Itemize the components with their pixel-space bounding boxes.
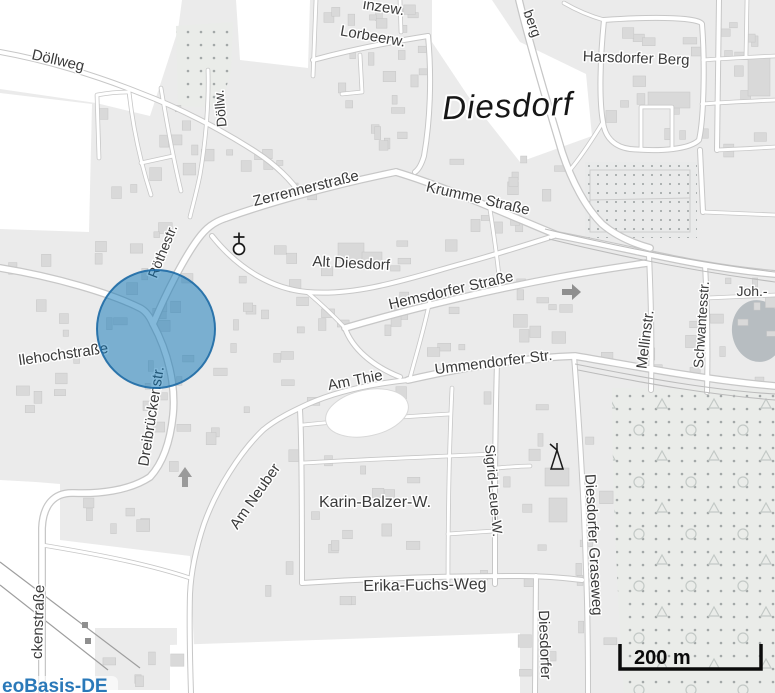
building (376, 18, 387, 28)
building (404, 5, 416, 14)
building (738, 319, 748, 325)
building (239, 276, 246, 283)
building (171, 654, 184, 666)
building (375, 127, 381, 140)
map-label-diesdorf: Diesdorf (442, 85, 577, 127)
building (445, 240, 457, 251)
building (206, 433, 216, 445)
building (754, 302, 760, 310)
building (214, 368, 228, 375)
building (504, 477, 511, 487)
building (130, 244, 142, 253)
building (391, 108, 404, 114)
building (59, 314, 68, 324)
map-label-erika-fuchs-weg: Erika-Fuchs-Weg (363, 576, 487, 595)
building (509, 177, 518, 186)
building (642, 38, 655, 46)
building (549, 304, 557, 309)
building (150, 168, 162, 181)
building (748, 58, 770, 96)
building (169, 461, 178, 471)
building (182, 121, 191, 130)
building (56, 373, 68, 384)
building (520, 329, 529, 342)
building (54, 390, 65, 396)
building (604, 638, 617, 645)
building (103, 658, 116, 665)
building (754, 133, 766, 142)
building (538, 545, 546, 551)
building (459, 344, 465, 349)
building (600, 491, 614, 504)
building (63, 330, 68, 336)
building (734, 66, 743, 76)
building (244, 407, 249, 413)
building (34, 391, 42, 403)
building (227, 150, 233, 155)
building (233, 320, 238, 331)
building (542, 189, 550, 201)
scale-bar-label: 200 m (634, 647, 691, 669)
map-canvas[interactable]: DöllwegDöllw.inzew.Lorbeerw.bergHarsdorf… (0, 0, 775, 693)
building (135, 676, 143, 687)
building (579, 621, 584, 633)
building (518, 635, 531, 647)
building (633, 76, 646, 87)
building (411, 75, 418, 87)
building (513, 314, 527, 327)
building (86, 508, 92, 521)
building (126, 508, 135, 516)
building (231, 343, 237, 352)
building (537, 298, 549, 303)
building (545, 468, 569, 486)
building (95, 254, 102, 265)
building (530, 326, 541, 337)
building (576, 563, 582, 575)
building (549, 498, 567, 522)
building (552, 332, 566, 343)
building (368, 53, 374, 66)
building (406, 541, 419, 549)
building (287, 253, 297, 263)
building (720, 29, 730, 36)
building (683, 38, 697, 44)
building (343, 530, 353, 539)
map-label-joh: Joh.- (736, 283, 767, 299)
building (521, 156, 527, 163)
building (484, 392, 491, 404)
map-label-diesdorfer-str: Diesdorfer (535, 610, 554, 680)
building (392, 95, 397, 104)
building (450, 159, 464, 164)
building (519, 669, 531, 676)
building (112, 187, 122, 199)
building (286, 562, 293, 575)
map-label-doellw: Döllw. (210, 89, 229, 128)
building (183, 163, 196, 175)
building (192, 145, 198, 155)
building (331, 541, 339, 551)
building (767, 331, 775, 336)
building (449, 307, 459, 314)
building (729, 22, 737, 27)
building (710, 314, 723, 323)
building (391, 266, 400, 271)
building (177, 424, 191, 431)
building (621, 101, 629, 108)
building (529, 449, 540, 460)
building (538, 434, 543, 447)
building (41, 254, 50, 266)
building (383, 71, 396, 81)
building (111, 524, 117, 534)
building (95, 241, 106, 251)
building (261, 310, 268, 319)
building (691, 47, 701, 56)
building (725, 278, 731, 284)
building (369, 15, 376, 20)
building (266, 585, 271, 596)
building (398, 258, 411, 264)
building (83, 498, 93, 508)
building (720, 347, 725, 357)
building (281, 352, 293, 360)
highlight-circle[interactable] (97, 270, 215, 388)
building (319, 319, 326, 331)
building (680, 131, 686, 140)
building (16, 386, 29, 395)
building (523, 504, 532, 512)
map-label-ckenstrasse: ckenstraße (29, 584, 49, 659)
attribution[interactable]: eoBasis-DE (0, 676, 118, 693)
building (274, 353, 281, 362)
building (297, 327, 304, 333)
attribution-text[interactable]: eoBasis-DE (2, 676, 108, 693)
building (606, 110, 617, 122)
building (361, 466, 366, 474)
building (36, 300, 46, 312)
building (637, 94, 645, 105)
building (397, 241, 408, 247)
building (25, 405, 34, 412)
building (282, 380, 295, 386)
building (586, 437, 594, 444)
building (340, 596, 352, 605)
building (297, 297, 309, 306)
building (346, 101, 353, 108)
building (131, 184, 137, 192)
building (408, 477, 420, 483)
building (385, 325, 391, 336)
building (622, 28, 633, 39)
building (427, 348, 439, 357)
map-viewport: DöllwegDöllw.inzew.Lorbeerw.bergHarsdorf… (0, 0, 775, 693)
building (149, 652, 156, 665)
building (241, 161, 251, 172)
building (398, 50, 405, 59)
building (274, 246, 286, 254)
building (243, 303, 252, 312)
building (517, 290, 524, 300)
map-label-karin-balzer-w: Karin-Balzer-W. (319, 494, 431, 511)
building (311, 512, 319, 520)
building (398, 132, 408, 139)
building (332, 7, 340, 16)
building (536, 405, 548, 410)
building (471, 219, 480, 231)
building (382, 524, 392, 536)
building (137, 520, 150, 532)
building (560, 305, 573, 313)
building (379, 141, 388, 151)
